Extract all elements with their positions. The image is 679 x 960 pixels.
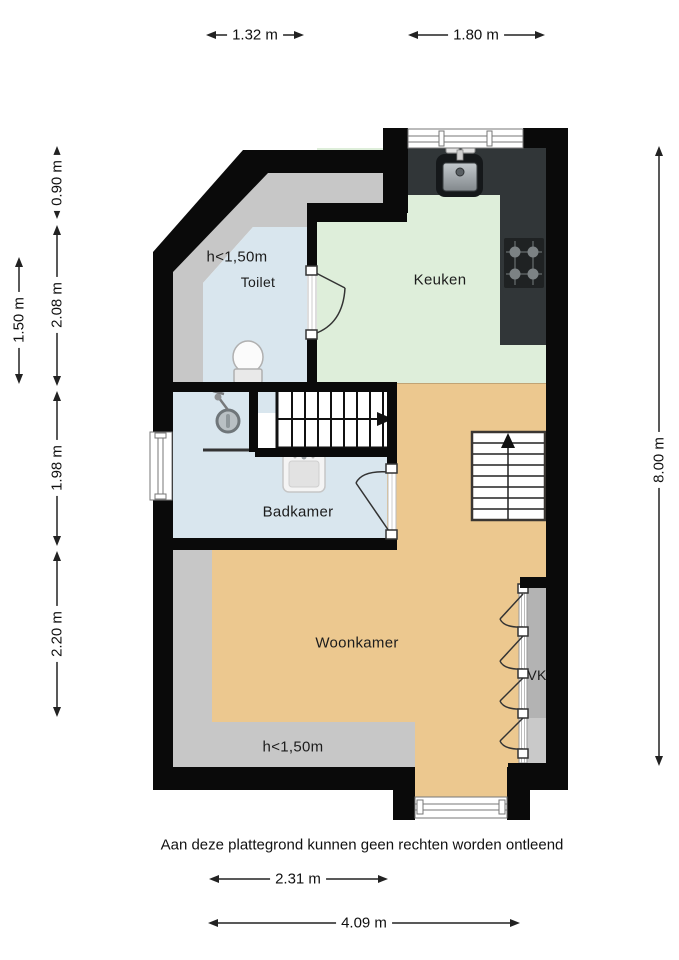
disclaimer-text: Aan deze plattegrond kunnen geen rechten… [161, 837, 564, 854]
woonkamer-floor-bump [415, 767, 507, 798]
floorplan-drawing [0, 0, 679, 960]
window-top [408, 129, 523, 148]
stairs-up [472, 432, 545, 520]
floorplan-canvas: h<1,50m Toilet Keuken Badkamer Woonkamer… [0, 0, 679, 960]
closet-interior [527, 588, 546, 718]
dim-right-1: 8.00 m [651, 432, 668, 488]
dim-left-4: 1.98 m [49, 440, 66, 496]
room-label-vk: VK [527, 667, 546, 683]
dim-top-1: 1.32 m [227, 27, 283, 44]
woonkamer-height-note: h<1,50m [263, 739, 324, 756]
dim-left-1: 0.90 m [49, 155, 66, 211]
dim-bottom-1: 2.31 m [270, 871, 326, 888]
closet-interior-low [527, 718, 546, 763]
room-label-toilet: Toilet [241, 274, 275, 290]
toilet-height-note: h<1,50m [207, 249, 268, 266]
stove-icon [504, 238, 544, 288]
stairs-down [258, 390, 395, 448]
room-label-woonkamer: Woonkamer [315, 635, 398, 652]
dim-left-5: 2.20 m [49, 606, 66, 662]
window-bottom [415, 797, 507, 818]
bathroom-sink-icon [283, 452, 325, 492]
room-label-badkamer: Badkamer [263, 504, 334, 521]
dim-bottom-2: 4.09 m [336, 915, 392, 932]
dim-left-2: 2.08 m [49, 277, 66, 333]
toilet-icon [233, 341, 263, 383]
window-left [150, 432, 172, 500]
stair-landing [258, 413, 277, 448]
dim-top-2: 1.80 m [448, 27, 504, 44]
dim-left-3: 1.50 m [11, 292, 28, 348]
room-label-keuken: Keuken [414, 272, 467, 289]
